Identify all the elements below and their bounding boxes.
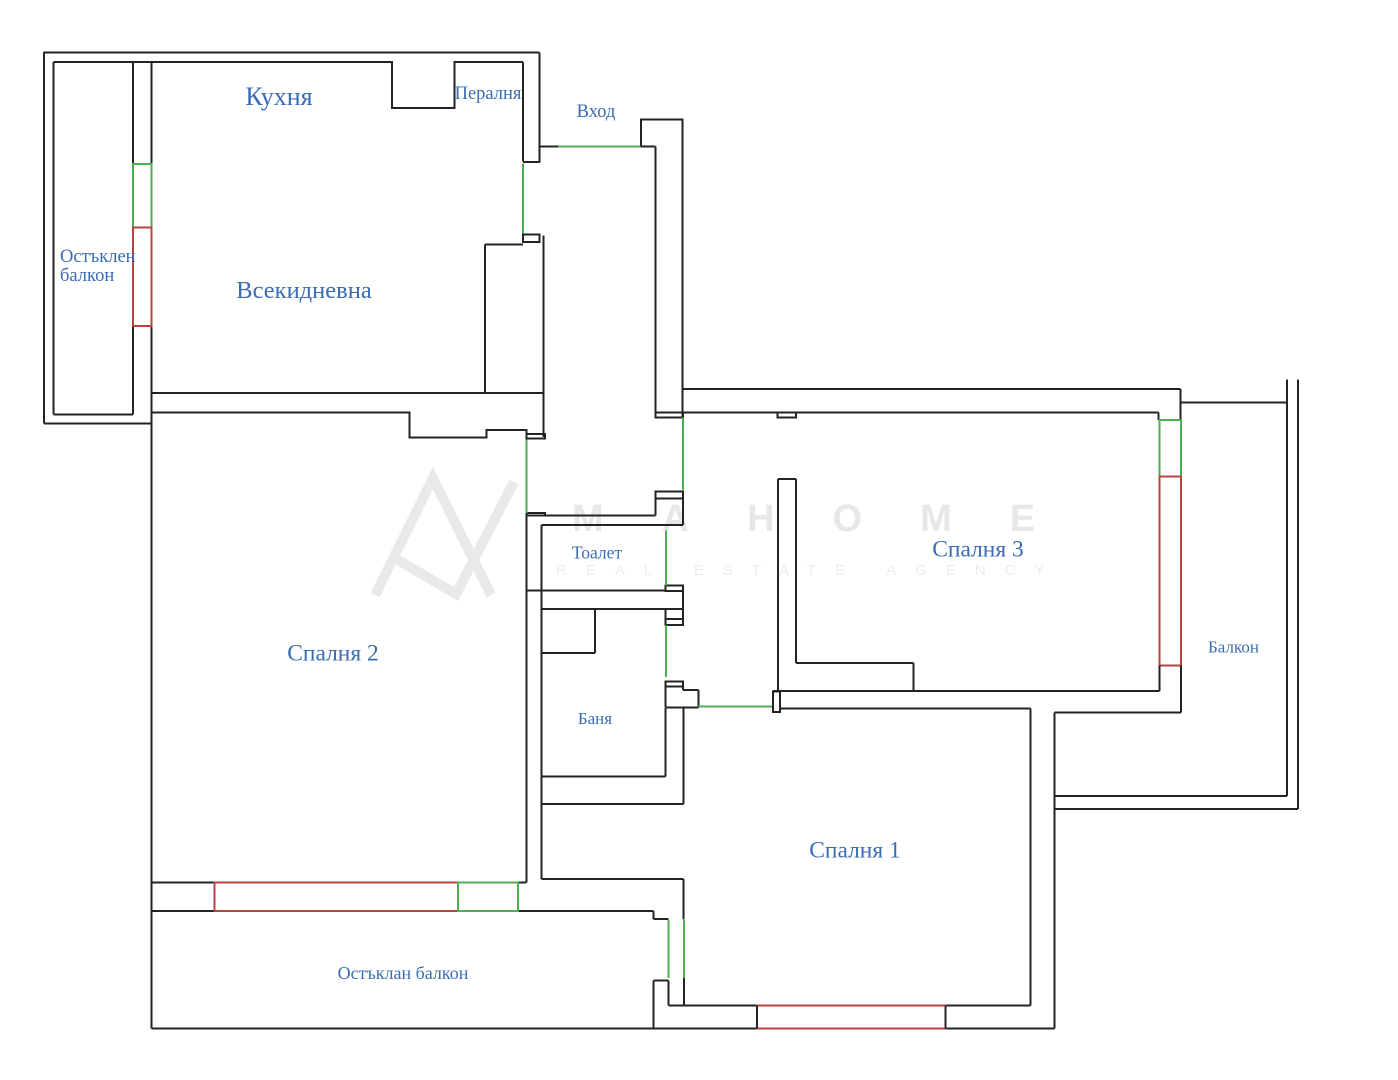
svg-text:Вход: Вход (577, 102, 616, 122)
svg-text:Балкон: Балкон (1208, 638, 1259, 657)
svg-text:Спалня 2: Спалня 2 (287, 641, 379, 667)
svg-text:Тоалет: Тоалет (572, 543, 623, 563)
svg-text:REAL ESTATE AGENCY: REAL ESTATE AGENCY (556, 562, 1064, 579)
svg-text:МАНОМЕ: МАНОМЕ (572, 498, 1093, 540)
svg-text:Баня: Баня (578, 709, 612, 728)
svg-text:Кухня: Кухня (245, 82, 312, 111)
svg-text:балкон: балкон (60, 266, 114, 286)
svg-text:Спалня 1: Спалня 1 (809, 838, 901, 864)
svg-text:Остъклан балкон: Остъклан балкон (338, 963, 469, 983)
svg-text:Пералня: Пералня (455, 84, 522, 104)
svg-text:Остъклен: Остъклен (60, 247, 136, 267)
svg-text:Всекидневна: Всекидневна (236, 277, 372, 304)
svg-text:Спалня 3: Спалня 3 (932, 537, 1024, 563)
